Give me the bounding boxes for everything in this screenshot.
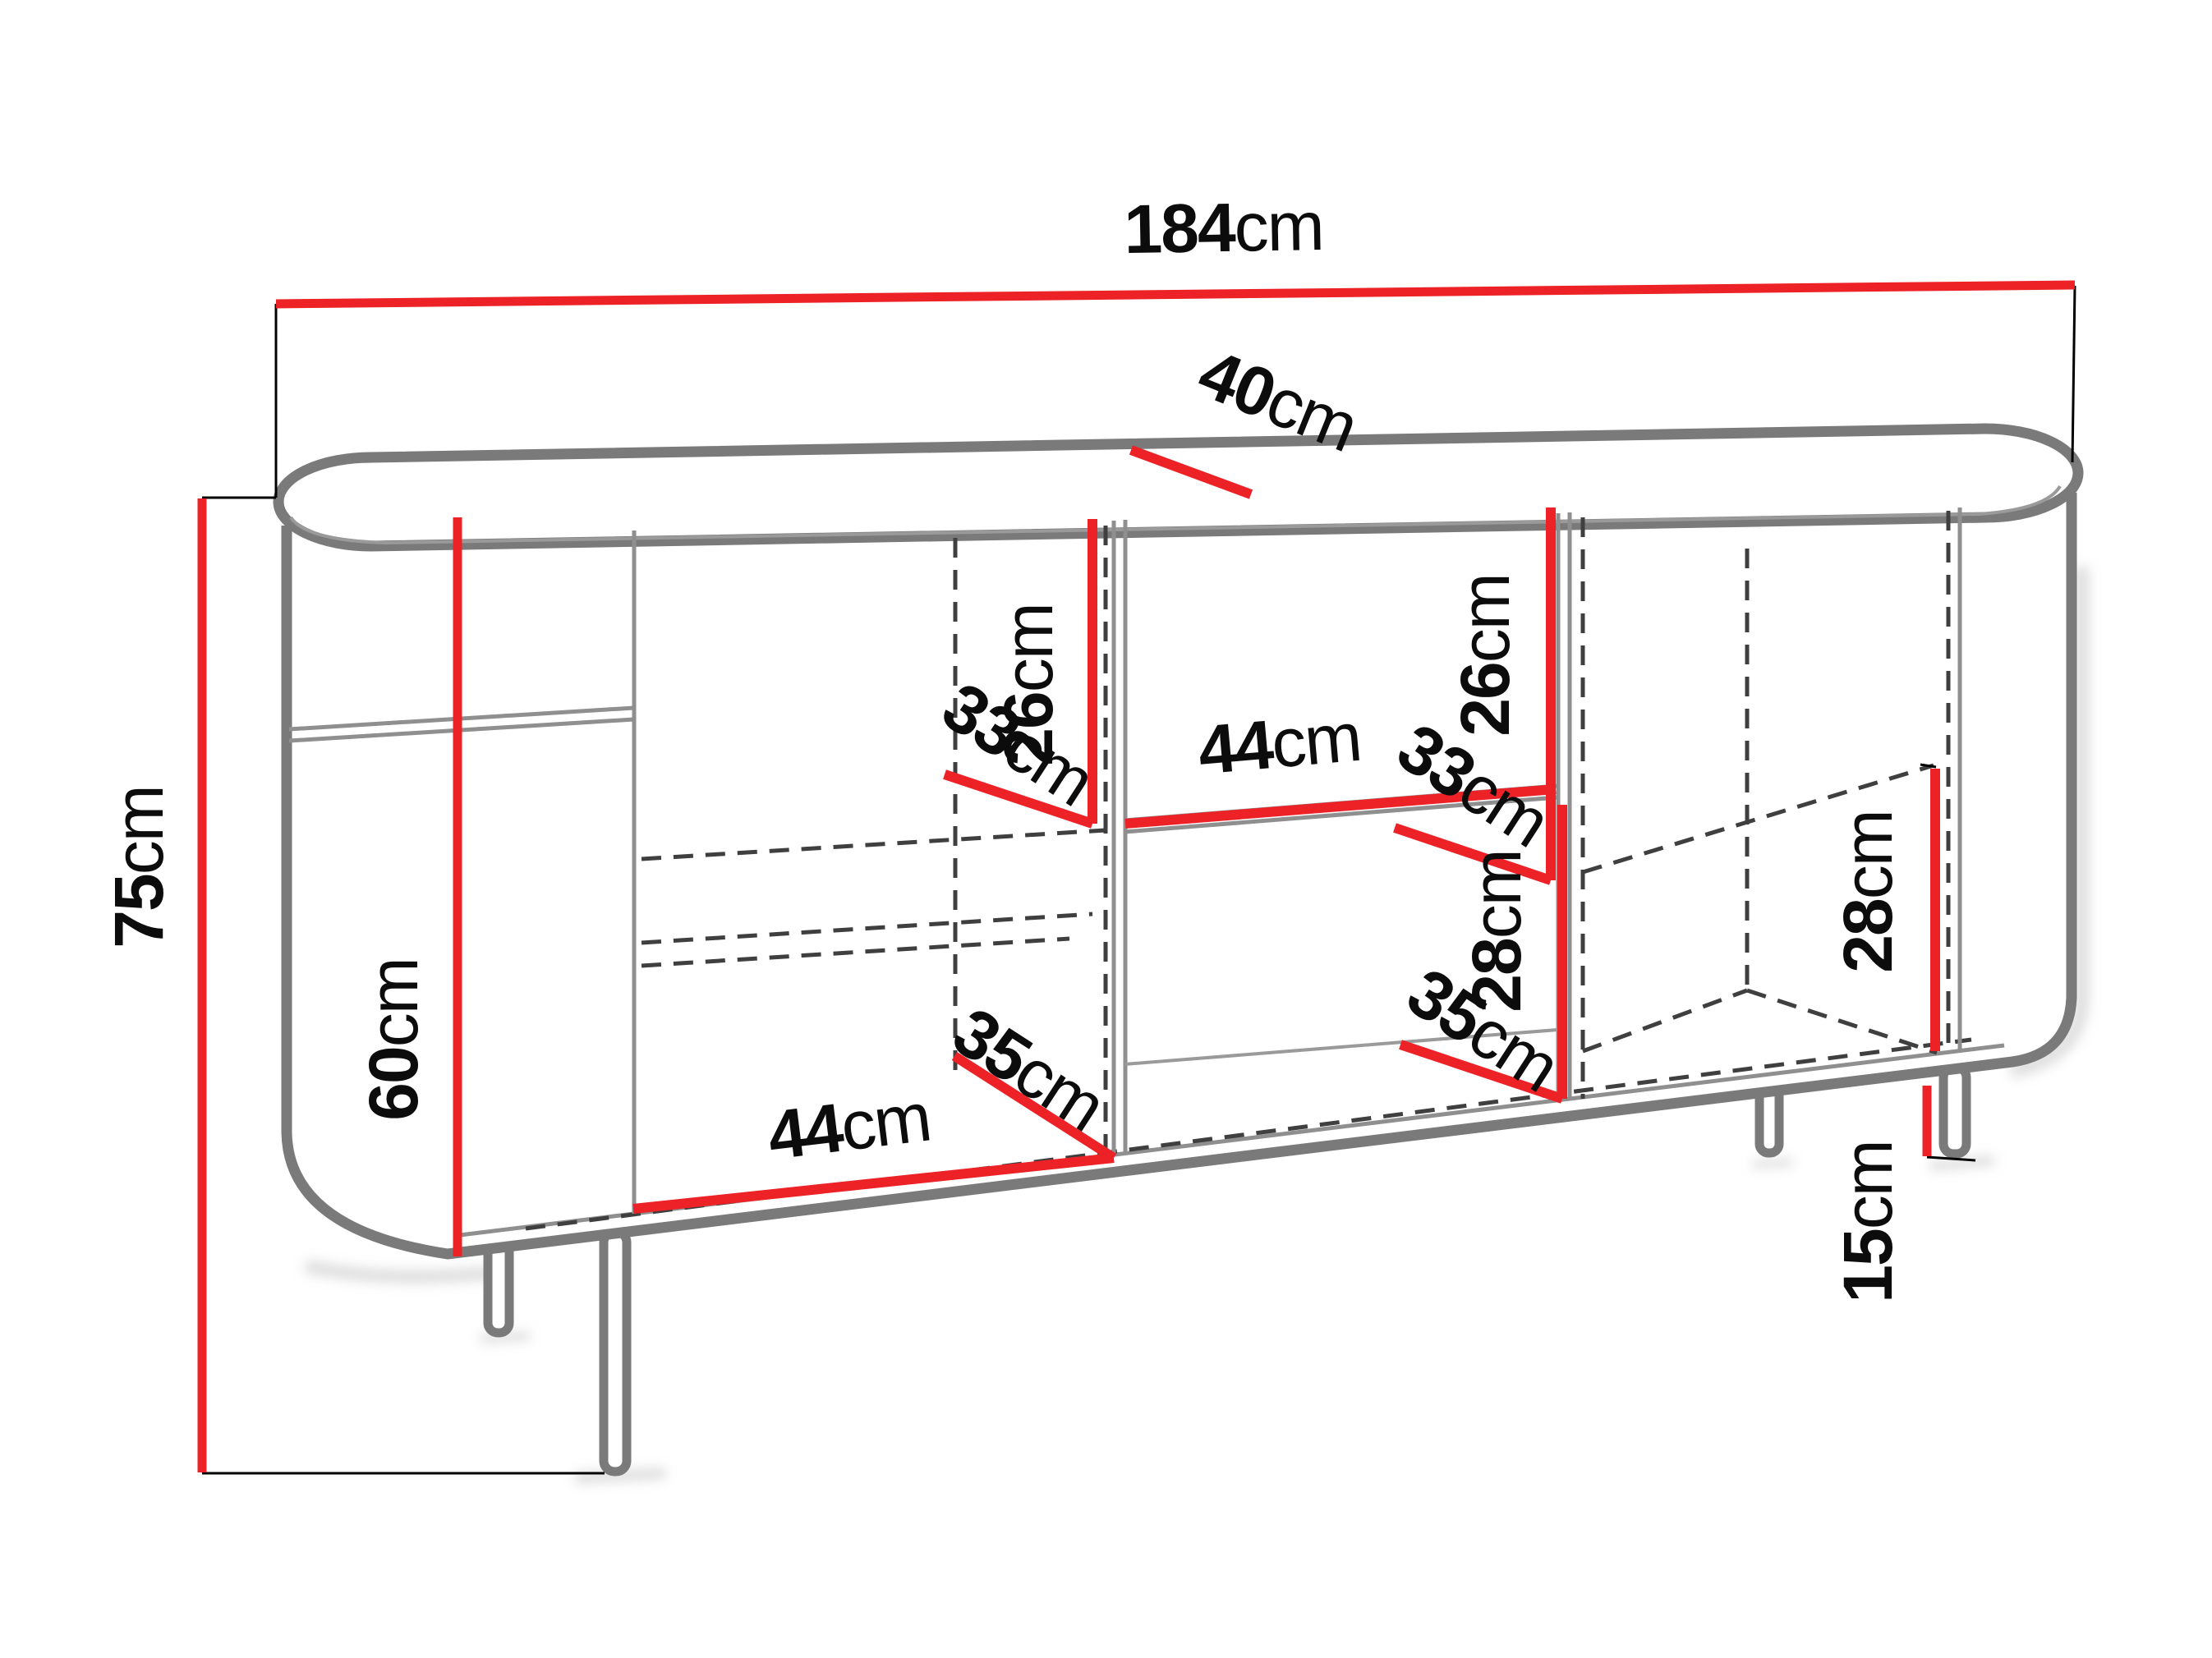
leg-shadow-back-right	[1753, 1162, 1792, 1164]
dimension-label-middle-shelf-width: 44cm	[1195, 698, 1364, 789]
dimension-diagram-page: 184cm 40cm 75cm 60cm 26cm 33cm 44cm 26cm…	[0, 0, 2212, 1658]
dimension-label-height: 75cm	[100, 786, 177, 948]
leg-shadow-front-right	[1930, 1160, 1994, 1166]
dimension-diagram: 184cm 40cm 75cm 60cm 26cm 33cm 44cm 26cm…	[0, 0, 2212, 1658]
dimension-label-interior-height: 60cm	[355, 958, 432, 1120]
dimension-label-leg-height: 15cm	[1829, 1141, 1906, 1302]
leg-front-right	[1943, 1068, 1966, 1154]
dimension-label-right-lower-height: 28cm	[1829, 811, 1906, 972]
dimension-label-right-cubby-height: 26cm	[1446, 574, 1524, 736]
leg-shadow-back-left	[481, 1336, 530, 1339]
leg-front-left	[604, 1232, 627, 1472]
dimension-label-width: 184cm	[1124, 187, 1324, 268]
